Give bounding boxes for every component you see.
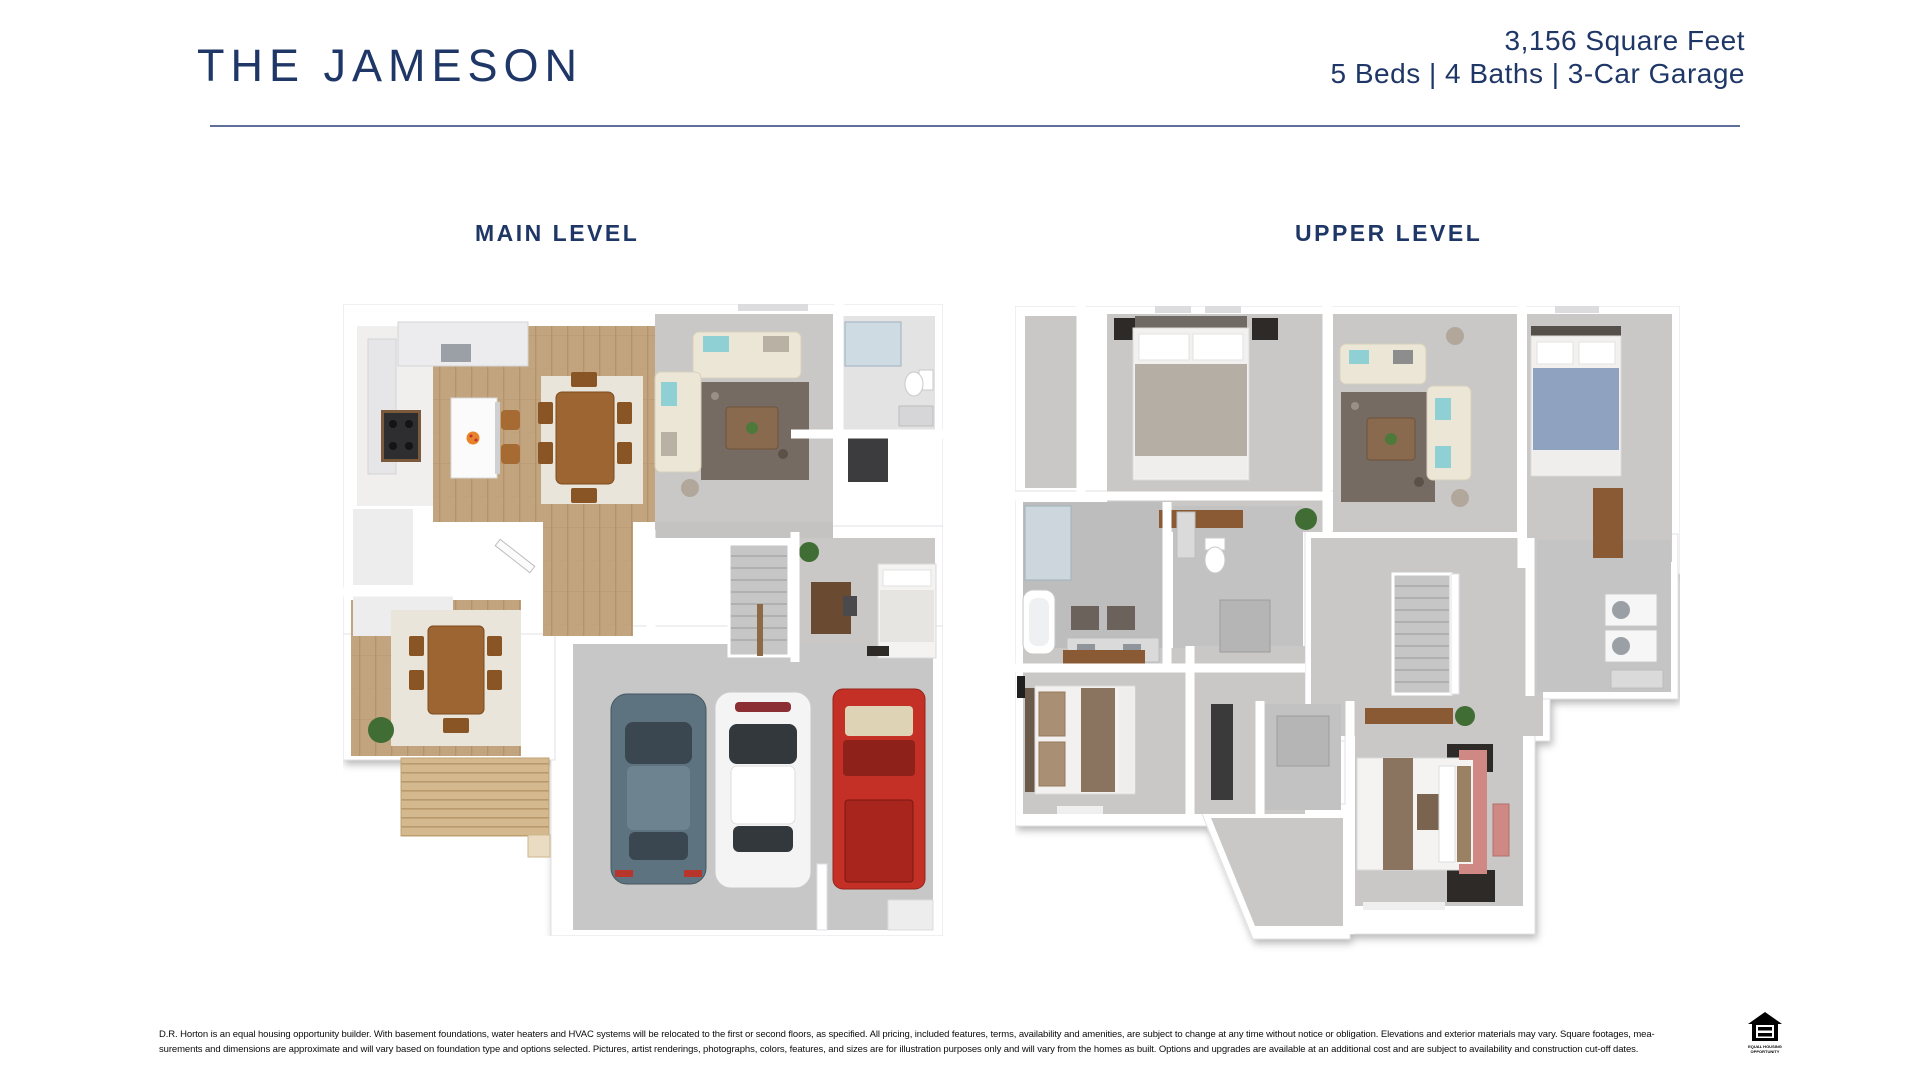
coffee-table [726,407,778,449]
equal-housing-opportunity-logo: EQUAL HOUSING OPPORTUNITY [1747,1011,1783,1057]
kitchen-sink [441,344,471,362]
garage-car-blue [611,694,706,884]
accent-rug [1493,804,1509,856]
stool [501,444,520,464]
garage-car-white [715,692,811,888]
sofa [693,332,801,378]
stool [501,410,520,430]
windshield [625,722,692,764]
disclaimer-line-1: D.R. Horton is an equal housing opportun… [159,1027,1751,1042]
beds-baths-garage: 5 Beds | 4 Baths | 3-Car Garage [1331,57,1745,90]
bed [1025,686,1135,794]
nightstand [1447,870,1495,902]
door-threshold [1363,902,1445,910]
sofa [655,372,701,472]
bed [878,564,936,658]
dining-table [556,392,614,484]
kitchen-island [451,398,500,478]
window [1205,306,1241,313]
bath-mat [1071,606,1099,630]
side-table [681,479,699,497]
bed [1357,750,1487,874]
main-level-floorplan [343,304,943,936]
window [1155,306,1191,313]
dresser [867,646,889,656]
shower [845,322,901,366]
dining-area [538,372,643,504]
plant [1295,508,1317,530]
windshield [729,724,797,764]
plant [799,542,819,562]
square-feet: 3,156 Square Feet [1331,24,1745,57]
garage-truck-red [833,689,925,889]
garage-wall-stub [817,864,827,930]
hallway-floor [655,522,833,538]
vanity [1177,512,1195,558]
shower [1025,506,1071,580]
closet-floor [1025,316,1077,488]
dresser [1365,708,1453,724]
legal-disclaimer: D.R. Horton is an equal housing opportun… [159,1027,1751,1057]
opportunity-text: OPPORTUNITY [1751,1049,1780,1054]
floorplan-sheet: THE JAMESON 3,156 Square Feet 5 Beds | 4… [0,0,1920,1080]
shower-stall [1220,600,1270,652]
plant [368,717,394,743]
loft-coffee-table [1367,418,1415,460]
vanity [899,406,933,426]
stair-rail-wall [1451,574,1459,694]
laundry-room [1605,594,1663,688]
side-table [1451,489,1469,507]
page-title: THE JAMESON [197,40,583,92]
equals-bar [1758,1033,1772,1037]
bath3-shower [1277,716,1329,766]
main-level-label: MAIN LEVEL [475,220,639,247]
window [1555,306,1599,313]
upper-level-label: UPPER LEVEL [1295,220,1482,247]
truck-hood [845,706,913,736]
laundry-counter [1611,670,1663,688]
linen-closet [1211,704,1233,800]
pantry-floor [353,509,413,585]
disclaimer-line-2: surements and dimensions are approximate… [159,1042,1751,1057]
toilet [1205,538,1225,573]
truck-bed [845,800,913,882]
deck [401,758,550,857]
home-stats: 3,156 Square Feet 5 Beds | 4 Baths | 3-C… [1331,24,1745,90]
headboard-pink [1473,752,1487,874]
equals-bar [1758,1027,1772,1031]
staircase [1393,574,1459,694]
staircase [729,544,789,656]
door-threshold [1057,806,1103,814]
header-divider [210,125,1740,127]
bed [1133,316,1249,480]
desk-chair [843,596,857,616]
stair-rail [757,604,763,656]
dresser [1593,488,1623,558]
flex-table [428,626,484,714]
bed [1531,326,1621,476]
garage-step [888,900,933,930]
dresser [1159,510,1243,528]
floor-lamp [1446,327,1464,345]
range-cooktop [381,410,421,462]
tv [1017,676,1025,698]
bath-mat [1107,606,1135,630]
plant [1455,706,1475,726]
nightstand [1252,318,1278,340]
upper-level-floorplan [1015,306,1680,956]
closet-dark [848,436,888,482]
pizza [467,432,480,445]
window [738,304,808,311]
